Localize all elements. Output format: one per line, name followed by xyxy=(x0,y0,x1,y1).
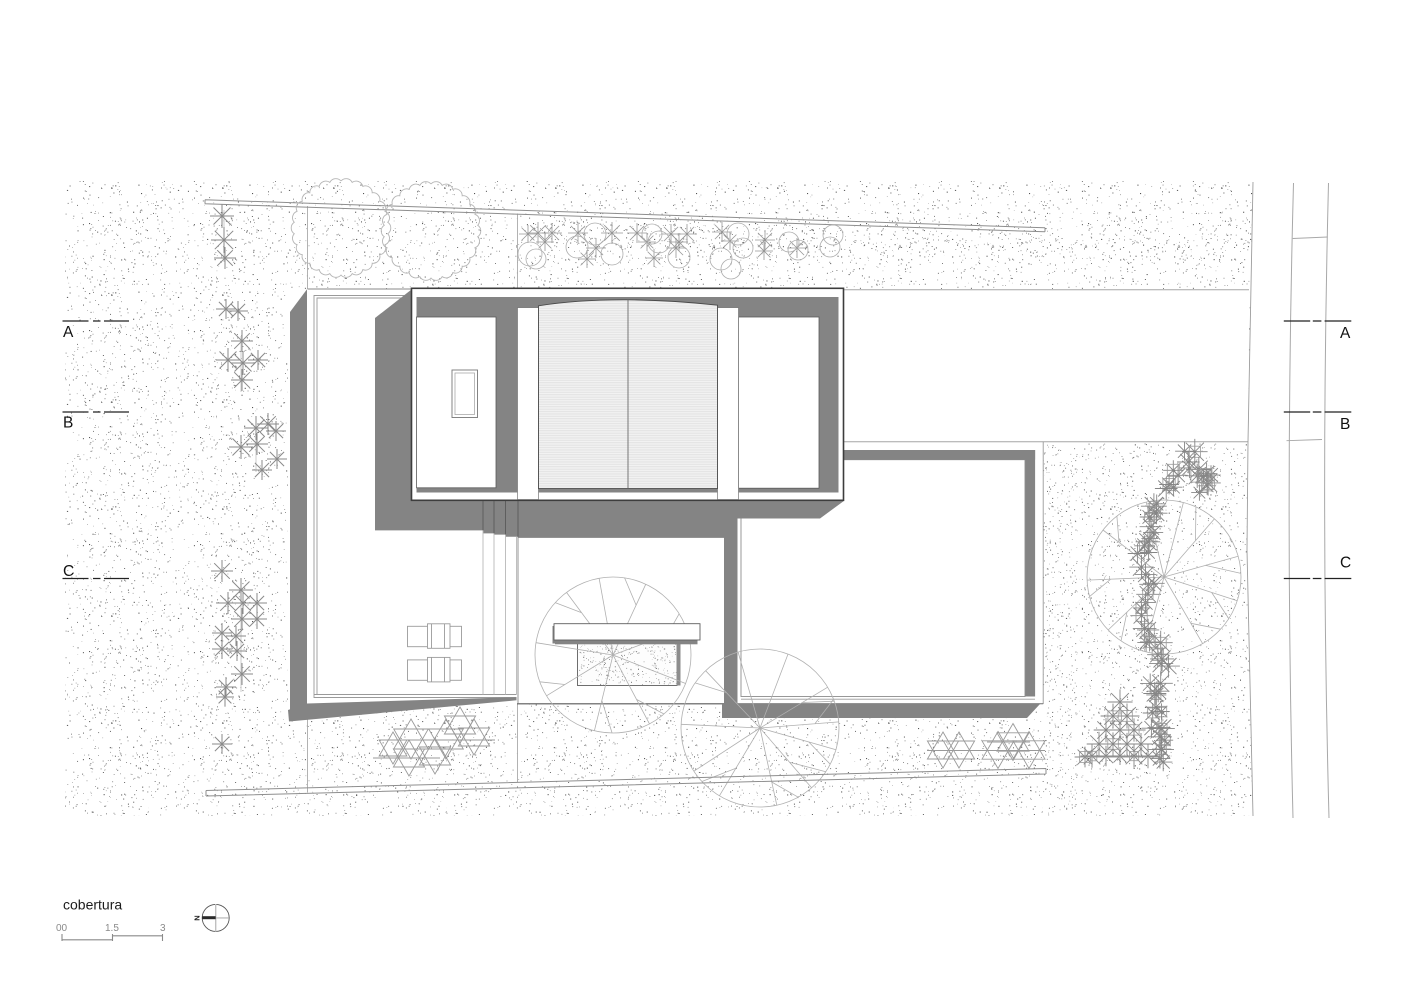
svg-text:A: A xyxy=(1340,325,1351,342)
svg-text:1.5: 1.5 xyxy=(105,923,119,934)
svg-text:C: C xyxy=(63,563,74,580)
svg-text:A: A xyxy=(63,324,74,341)
svg-text:3: 3 xyxy=(160,923,166,934)
svg-text:cobertura: cobertura xyxy=(63,897,122,913)
svg-text:00: 00 xyxy=(56,923,68,934)
svg-text:B: B xyxy=(1340,416,1350,433)
svg-text:N: N xyxy=(193,915,202,920)
svg-text:C: C xyxy=(1340,555,1351,572)
svg-text:B: B xyxy=(63,415,73,432)
